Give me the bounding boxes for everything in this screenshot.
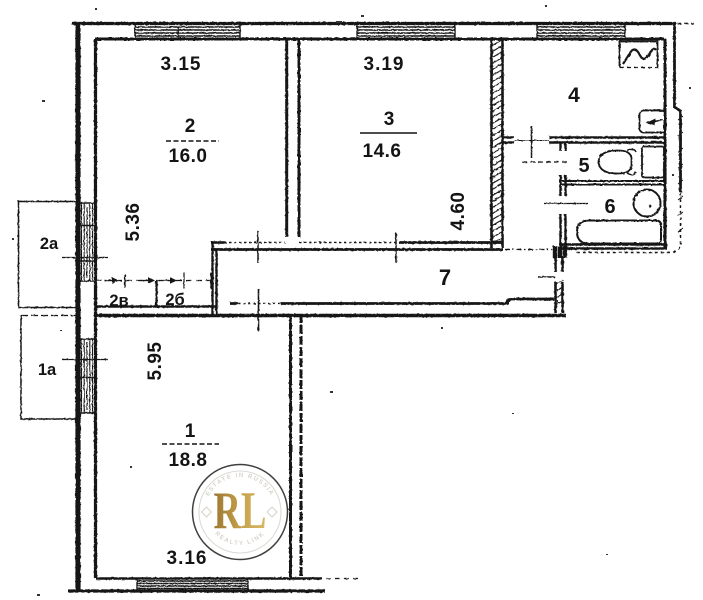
svg-text:4.60: 4.60: [448, 192, 469, 231]
svg-text:14.6: 14.6: [363, 141, 402, 162]
svg-text:RL: RL: [214, 482, 267, 540]
svg-text:2в: 2в: [109, 292, 128, 310]
svg-text:2: 2: [185, 116, 196, 137]
svg-text:4: 4: [568, 84, 580, 107]
svg-text:7: 7: [439, 265, 451, 290]
svg-text:5: 5: [578, 155, 589, 177]
svg-text:5.36: 5.36: [123, 203, 144, 242]
svg-text:3: 3: [384, 109, 395, 130]
svg-text:18.8: 18.8: [169, 450, 208, 471]
svg-text:1а: 1а: [38, 361, 57, 379]
svg-text:16.0: 16.0: [169, 146, 208, 167]
svg-text:2б: 2б: [165, 291, 184, 309]
svg-text:6: 6: [604, 196, 615, 218]
svg-text:2а: 2а: [40, 235, 59, 253]
svg-text:3.16: 3.16: [167, 548, 208, 569]
svg-text:3.19: 3.19: [364, 54, 405, 75]
svg-text:5.95: 5.95: [145, 342, 166, 381]
svg-text:1: 1: [185, 421, 196, 442]
svg-text:3.15: 3.15: [161, 54, 202, 75]
